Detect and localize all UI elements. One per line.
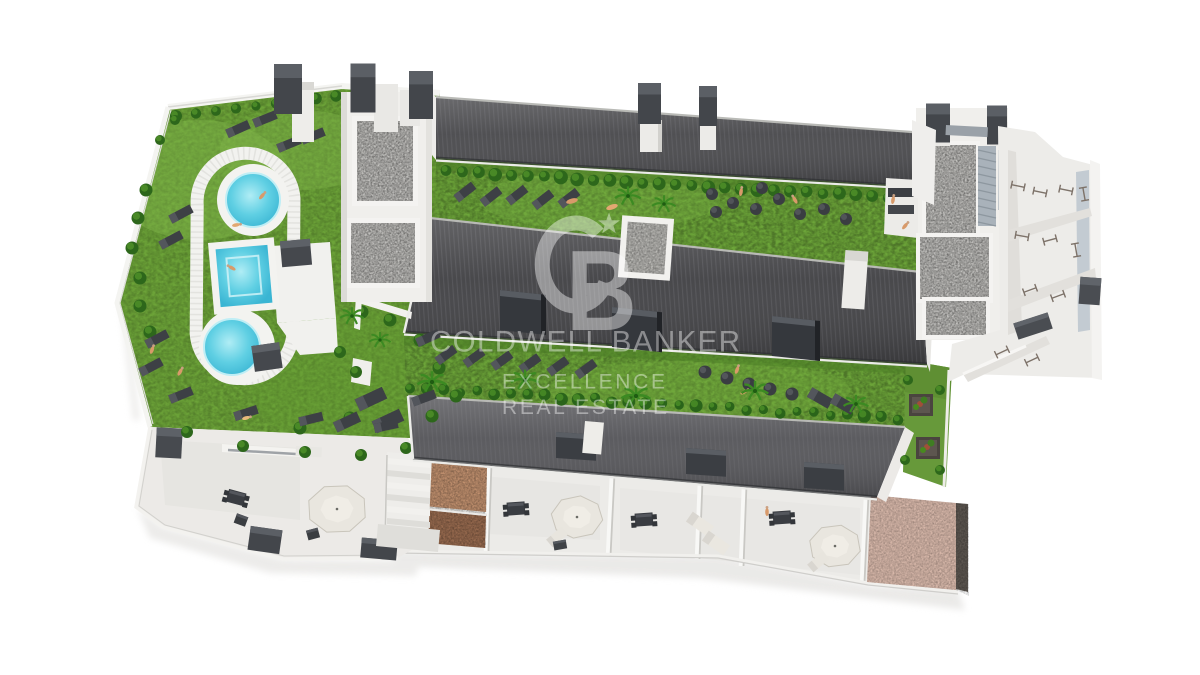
svg-text:EXCELLENCE: EXCELLENCE bbox=[502, 371, 665, 394]
svg-text:COLDWELL BANKER: COLDWELL BANKER bbox=[430, 326, 740, 359]
svg-text:REAL ESTATE: REAL ESTATE bbox=[502, 396, 667, 419]
